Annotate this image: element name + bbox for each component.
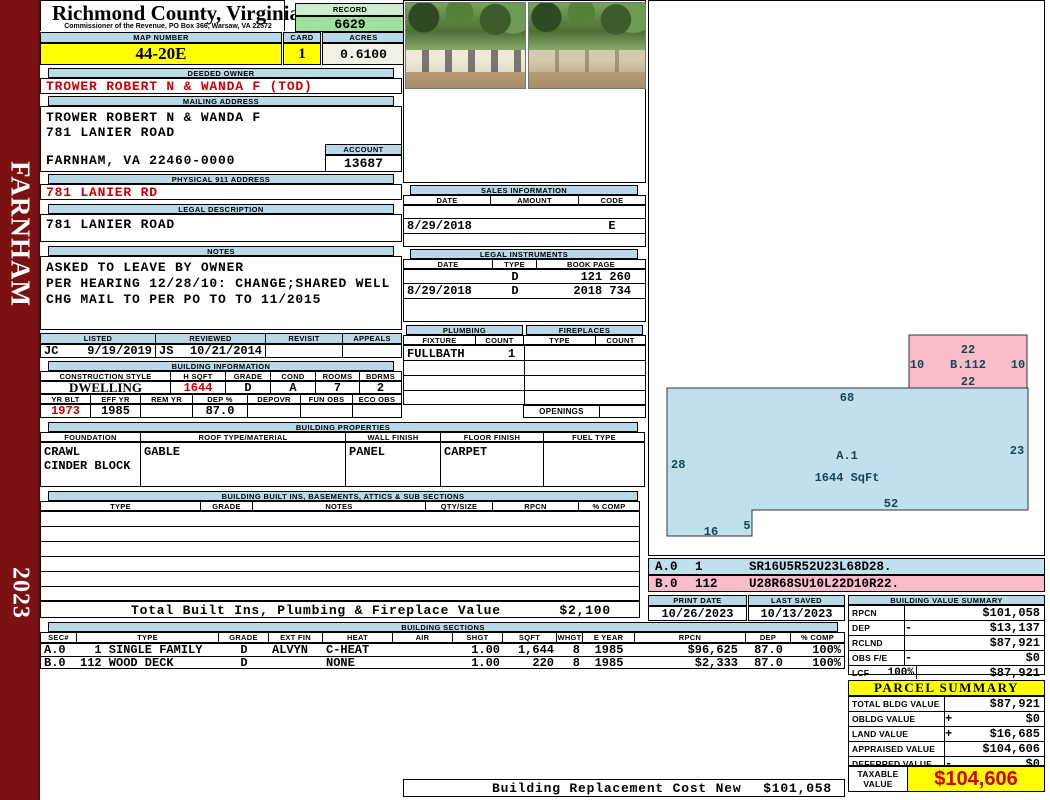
sales-row xyxy=(404,206,645,219)
notes-label: NOTES xyxy=(48,246,394,256)
roof-type: GABLE xyxy=(141,443,346,486)
deck-label: B.112 xyxy=(950,358,986,372)
last-saved-value: 10/13/2023 xyxy=(748,606,845,621)
built-ins-total-label: Total Built Ins, Plumbing & Fireplace Va… xyxy=(131,603,501,618)
sections-header: SEC# TYPE GRADE EXT FIN HEAT AIR SHGT SQ… xyxy=(40,632,845,643)
dwelling-dim-top: 68 xyxy=(840,391,854,405)
built-ins-total-value: $2,100 xyxy=(559,603,611,618)
photo-trees xyxy=(529,3,645,50)
card-value: 1 xyxy=(283,43,321,65)
building-props-label: BUILDING PROPERTIES xyxy=(48,422,638,432)
dwelling-dim-bottom-left: 16 xyxy=(704,525,718,539)
grade: D xyxy=(226,382,271,393)
plumbing-fireplaces-header: FIXTURE COUNT TYPE COUNT xyxy=(403,335,646,345)
replacement-cost-label: Building Replacement Cost New xyxy=(492,781,741,796)
map-number-value: 44-20E xyxy=(40,43,282,65)
plumbing-fireplaces-rows: FULLBATH 1 xyxy=(403,345,646,405)
section-row: B.0 112 WOOD DECK D NONE 1.00 220 8 1985… xyxy=(40,656,845,669)
bedrooms: 2 xyxy=(360,382,401,393)
deeded-owner-label: DEEDED OWNER xyxy=(48,68,394,78)
building-info-values-2: 1973 1985 87.0 xyxy=(40,404,402,418)
deck-dim-top: 22 xyxy=(961,343,975,357)
legal-description-value: 781 LANIER ROAD xyxy=(40,214,402,242)
taxable-value-label: TAXABLE VALUE xyxy=(849,767,908,791)
instrument-row: 8/29/2018 D 2018 734 xyxy=(404,284,645,299)
value-summary-row: RCLND $87,921 xyxy=(849,636,1044,651)
property-photo-front xyxy=(405,2,526,89)
dwelling-label: A.1 xyxy=(836,449,858,463)
rooms: 7 xyxy=(316,382,360,393)
photo-trees xyxy=(406,3,525,50)
reviewed-by: JS xyxy=(159,344,173,358)
listed-date: 9/19/2019 xyxy=(87,344,152,358)
property-photo-side xyxy=(528,2,646,89)
parcel-row: LAND VALUE + $16,685 xyxy=(849,727,1044,742)
replacement-cost-value: $101,058 xyxy=(763,781,832,796)
last-saved-label: LAST SAVED xyxy=(748,595,845,606)
note-line: ASKED TO LEAVE BY OWNER xyxy=(46,260,244,275)
building-sketch: 22 10 B.112 10 22 68 28 23 A.1 1644 SqFt… xyxy=(649,1,1044,555)
built-ins-header: TYPE GRADE NOTES QTY/SIZE RPCN % COMP xyxy=(40,501,640,511)
built-ins-label: BUILDING BUILT INS, BASEMENTS, ATTICS & … xyxy=(48,491,638,501)
dwelling-dim-right: 23 xyxy=(1010,444,1024,458)
map-number-label: MAP NUMBER xyxy=(40,32,282,43)
sales-header: DATE AMOUNT CODE xyxy=(403,195,646,205)
tax-year: 2023 xyxy=(7,567,34,619)
foundation-2: CINDER BLOCK xyxy=(44,459,130,473)
fireplaces-label: FIREPLACES xyxy=(526,325,643,335)
mailing-line-3: FARNHAM, VA 22460-0000 xyxy=(46,153,235,168)
openings-row: OPENINGS xyxy=(523,405,646,418)
value-summary-row: RPCN $101,058 xyxy=(849,606,1044,621)
value-summary-label: BUILDING VALUE SUMMARY xyxy=(848,595,1045,605)
deeded-owner-value: TROWER ROBERT N & WANDA F (TOD) xyxy=(40,78,402,94)
year-built: 1973 xyxy=(41,405,91,417)
photo-house xyxy=(529,50,645,72)
dwelling-dim-bottom: 52 xyxy=(884,497,898,511)
fuel-type xyxy=(544,443,644,486)
account-value: 13687 xyxy=(325,155,402,172)
building-info-header-2: YR BLT EFF YR REM YR DEP % DEPOVR FUN OB… xyxy=(40,394,402,404)
building-info-values-1: DWELLING 1644 D A 7 2 xyxy=(40,381,402,394)
heated-sqft: 1644 xyxy=(171,382,226,393)
instruments-rows: D 121 260 8/29/2018 D 2018 734 xyxy=(403,269,646,322)
notes-box: ASKED TO LEAVE BY OWNER PER HEARING 12/2… xyxy=(40,256,402,330)
wall-finish: PANEL xyxy=(346,443,441,486)
depreciation-pct: 87.0 xyxy=(193,405,248,417)
building-info-label: BUILDING INFORMATION xyxy=(48,361,394,371)
appeals-value xyxy=(343,345,401,357)
deck-dim-right: 10 xyxy=(1011,358,1025,372)
building-props-values: CRAWL CINDER BLOCK GABLE PANEL CARPET xyxy=(40,442,645,487)
value-summary-row: OBS F/E - $0 xyxy=(849,651,1044,666)
floor-finish: CARPET xyxy=(441,443,544,486)
parcel-row: APPRAISED VALUE $104,606 xyxy=(849,742,1044,757)
print-date-label: PRINT DATE xyxy=(648,595,747,606)
parcel-row: TOTAL BLDG VALUE $87,921 xyxy=(849,697,1044,712)
construction-style: DWELLING xyxy=(41,382,171,393)
sales-row xyxy=(404,234,645,247)
record-label-cell: RECORD xyxy=(295,3,405,16)
account-label: ACCOUNT xyxy=(325,144,402,155)
instruments-header: DATE TYPE BOOK PAGE xyxy=(403,259,646,269)
building-sections-label: BUILDING SECTIONS xyxy=(48,622,838,632)
plumbing-count: 1 xyxy=(508,347,515,361)
mailing-line-1: TROWER ROBERT N & WANDA F xyxy=(46,110,261,125)
record-value: 6629 xyxy=(295,16,405,32)
sketch-code-b: B.0 112 U28R68SU10L22D10R22. xyxy=(648,575,1045,592)
economic-obs xyxy=(353,405,401,417)
deck-dim-left: 10 xyxy=(910,358,924,372)
deck-dim-bottom: 22 xyxy=(961,375,975,389)
parcel-summary-table: TOTAL BLDG VALUE $87,921 OBLDG VALUE + $… xyxy=(848,696,1045,766)
effective-year: 1985 xyxy=(91,405,141,417)
reviewed-date: 10/21/2014 xyxy=(190,344,262,358)
mailing-line-2: 781 LANIER ROAD xyxy=(46,125,175,140)
legal-description-label: LEGAL DESCRIPTION xyxy=(48,204,394,214)
sales-row: 8/29/2018 E xyxy=(404,219,645,234)
building-props-header: FOUNDATION ROOF TYPE/MATERIAL WALL FINIS… xyxy=(40,432,645,442)
mailing-address-label: MAILING ADDRESS xyxy=(48,96,394,106)
built-ins-empty-rows xyxy=(40,511,640,601)
note-line: CHG MAIL TO PER PO TO TO 11/2015 xyxy=(46,292,321,307)
dwelling-sqft: 1644 SqFt xyxy=(815,471,880,485)
openings-label: OPENINGS xyxy=(524,406,600,417)
taxable-value: $104,606 xyxy=(908,767,1044,791)
divider xyxy=(524,346,525,404)
photo-ground xyxy=(529,72,645,88)
foundation-1: CRAWL xyxy=(44,445,80,459)
value-summary-row: DEP - $13,137 xyxy=(849,621,1044,636)
dwelling-dim-step: 5 xyxy=(743,519,750,533)
county-subtitle: Commissioner of the Revenue, PO Box 366,… xyxy=(46,23,290,30)
parcel-summary-label: PARCEL SUMMARY xyxy=(848,680,1045,696)
taxable-value-row: TAXABLE VALUE $104,606 xyxy=(848,766,1045,792)
sketch-code-a: A.0 1 SR16U5R52U23L68D28. xyxy=(648,558,1045,575)
photo-panel xyxy=(403,0,646,183)
physical-address-value: 781 LANIER RD xyxy=(40,184,402,200)
functional-obs xyxy=(301,405,353,417)
acres-label: ACRES xyxy=(322,32,405,43)
instrument-row: D 121 260 xyxy=(404,270,645,284)
dep-override xyxy=(248,405,301,417)
sales-rows: 8/29/2018 E xyxy=(403,205,646,247)
remodel-year xyxy=(141,405,193,417)
section-row: A.0 1 SINGLE FAMILY D ALVYN C-HEAT 1.00 … xyxy=(40,643,845,656)
legal-instruments-label: LEGAL INSTRUMENTS xyxy=(410,249,638,259)
plumbing-label: PLUMBING xyxy=(406,325,523,335)
listed-by: JC xyxy=(44,344,58,358)
card-label: CARD xyxy=(283,32,321,43)
dwelling-dim-left: 28 xyxy=(671,458,685,472)
acres-value: 0.6100 xyxy=(322,43,405,65)
sketch-panel: 22 10 B.112 10 22 68 28 23 A.1 1644 SqFt… xyxy=(648,0,1045,556)
built-ins-total-row: Total Built Ins, Plumbing & Fireplace Va… xyxy=(40,601,640,618)
photo-ground xyxy=(406,72,525,88)
review-header-row: LISTED REVIEWED REVISIT APPEALS xyxy=(40,333,402,344)
print-date-value: 10/26/2023 xyxy=(648,606,747,621)
value-summary-table: RPCN $101,058 DEP - $13,137 RCLND $87,92… xyxy=(848,605,1045,675)
condition: A xyxy=(271,382,316,393)
replacement-cost-row: Building Replacement Cost New $101,058 xyxy=(403,779,845,797)
property-record-card: FARNHAM 2023 Richmond County, Virginia C… xyxy=(0,0,1050,800)
openings-value xyxy=(600,406,645,417)
note-line: PER HEARING 12/28/10: CHANGE;SHARED WELL xyxy=(46,276,390,291)
physical-address-label: PHYSICAL 911 ADDRESS xyxy=(48,174,394,184)
parcel-row: OBLDG VALUE + $0 xyxy=(849,712,1044,727)
photo-house xyxy=(406,50,525,72)
review-value-row: JC9/19/2019 JS10/21/2014 xyxy=(40,344,402,358)
district-name: FARNHAM xyxy=(5,161,36,307)
revisit-value xyxy=(266,345,343,357)
district-band: FARNHAM 2023 xyxy=(0,0,40,800)
sales-info-label: SALES INFORMATION xyxy=(410,185,638,195)
plumbing-fixture: FULLBATH xyxy=(407,347,465,361)
value-summary-row: LCF 100% $87,921 xyxy=(849,666,1044,679)
